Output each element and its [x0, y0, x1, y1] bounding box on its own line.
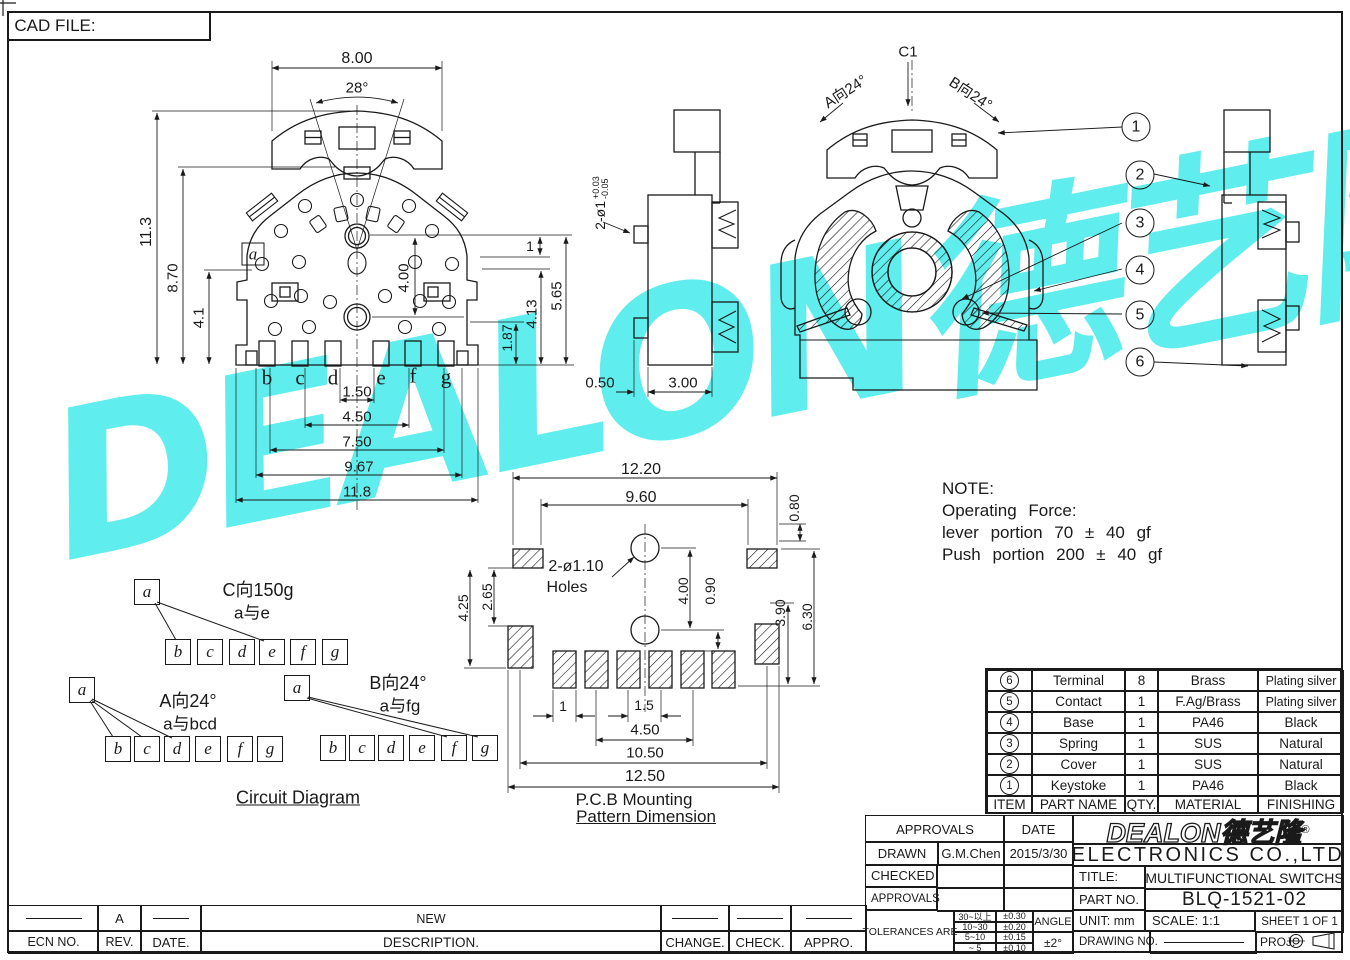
circuit-b-d: d	[378, 735, 404, 761]
circuit-a-a: a	[69, 677, 95, 703]
item-number: 4	[1000, 713, 1019, 732]
parts-row-item: 6	[987, 670, 1032, 691]
note-line-2: Operating Force:	[942, 501, 1077, 521]
part-name: Contact	[1032, 691, 1125, 712]
unit-cell: UNIT: mm	[1072, 910, 1145, 931]
parts-row-item: 5	[987, 691, 1032, 712]
angle-label: ANGLE	[1032, 910, 1074, 933]
part-material: SUS	[1158, 733, 1258, 754]
part-qty: 1	[1125, 754, 1158, 775]
front-marker-a: a	[242, 243, 265, 266]
balloon-3: 3	[1126, 209, 1155, 238]
parts-row-item: 3	[987, 733, 1032, 754]
dim-4-50-pcb: 4.50	[630, 722, 659, 739]
circuit-c-label-2: a与e	[234, 599, 270, 624]
circuit-a-b: b	[105, 736, 131, 762]
dim-11-3: 11.3	[138, 217, 156, 247]
circuit-a-f: f	[227, 736, 253, 762]
dim-1-pcb: 1	[559, 698, 567, 714]
title-value: MULTIFUNCTIONAL SWITCHS	[1145, 865, 1344, 890]
approvals-header: APPROVALS	[865, 815, 1005, 843]
header-check: CHECK.	[728, 930, 792, 954]
dim-0-80: 0.80	[786, 494, 802, 521]
part-material: PA46	[1158, 712, 1258, 733]
pcb-holes-callout-1: 2-ø1.10	[548, 558, 603, 576]
section-view-annotations	[820, 62, 1248, 366]
scale-cell: SCALE: 1:1	[1145, 910, 1255, 931]
front-pin-b: b	[262, 366, 273, 391]
part-qty: 1	[1125, 733, 1158, 754]
circuit-c-d: d	[229, 639, 255, 665]
dim-4-50-front: 4.50	[342, 409, 371, 426]
front-pin-c: c	[295, 366, 304, 391]
part-name: Keystoke	[1032, 775, 1125, 796]
approvals-label: APPROVALS	[865, 887, 937, 910]
header-description: DESCRIPTION.	[200, 930, 662, 954]
tol-val-4: ±0.10	[995, 942, 1034, 955]
dim-0-90: 0.90	[702, 577, 718, 604]
pcb-holes-callout-2: Holes	[547, 579, 588, 597]
dim-3-90: 3.90	[772, 599, 788, 626]
parts-row-item: 4	[987, 712, 1032, 733]
item-number: 1	[1000, 776, 1019, 795]
part-finishing: Natural	[1258, 733, 1344, 754]
proj-label: PROJ:	[1260, 935, 1295, 949]
balloon-2: 2	[1126, 161, 1155, 190]
title-label: TITLE:	[1072, 865, 1145, 888]
part-no-label: PART NO.	[1072, 888, 1145, 910]
part-qty: 1	[1125, 691, 1158, 712]
parts-row-item: 2	[987, 754, 1032, 775]
dim-1-87: 1.87	[499, 324, 515, 351]
right-view-linework	[1222, 110, 1299, 365]
pcb-pattern-linework	[508, 524, 779, 712]
cad-file-label: CAD FILE:	[14, 16, 95, 36]
part-finishing: Black	[1258, 775, 1344, 796]
circuit-c-e: e	[259, 639, 285, 665]
part-material: PA46	[1158, 775, 1258, 796]
dim-4-00-pcb: 4.00	[675, 577, 691, 604]
company-name: ELECTRONICS CO.,LTD	[1072, 844, 1345, 867]
dim-4-13: 4.13	[524, 299, 541, 328]
part-name: Spring	[1032, 733, 1125, 754]
part-finishing: Natural	[1258, 754, 1344, 775]
approvals-name	[937, 887, 1005, 912]
blank-dash	[1164, 942, 1244, 943]
dim-4-00-front: 4.00	[396, 263, 413, 292]
blank-dash	[737, 918, 783, 919]
blank-dash	[153, 918, 189, 919]
section-view-linework	[781, 60, 1043, 390]
circuit-caption: Circuit Diagram	[236, 788, 360, 809]
hole-tolerance: +0.03-0.05	[592, 176, 610, 199]
balloon-5: 5	[1126, 301, 1155, 330]
dim-28deg: 28°	[346, 80, 369, 97]
rev-change-dash	[660, 905, 730, 932]
checked-name	[937, 864, 1005, 889]
dim-8-70: 8.70	[165, 263, 182, 292]
checked-label: CHECKED	[865, 864, 937, 887]
circuit-c-a: a	[134, 579, 160, 605]
balloon-1: 1	[1122, 113, 1151, 142]
date-header: DATE	[1003, 815, 1074, 843]
part-qty: 1	[1125, 775, 1158, 796]
rev-letter: A	[97, 905, 142, 932]
circuit-a-c: c	[134, 736, 160, 762]
dim-4-25: 4.25	[455, 594, 471, 621]
blank-dash	[806, 918, 852, 919]
balloon-4: 4	[1126, 256, 1155, 285]
item-number: 3	[1000, 734, 1019, 753]
part-name: Cover	[1032, 754, 1125, 775]
dim-5-65: 5.65	[549, 281, 566, 310]
dim-12-50: 12.50	[625, 768, 665, 786]
circuit-c-b: b	[165, 639, 191, 665]
part-material: F.Ag/Brass	[1158, 691, 1258, 712]
pcb-caption-2: Pattern Dimension	[576, 807, 716, 827]
front-pin-f: f	[410, 364, 417, 389]
drawn-date: 2015/3/30	[1003, 841, 1074, 866]
circuit-a-e: e	[195, 736, 221, 762]
drawing-no-label: DRAWING NO.	[1072, 931, 1150, 952]
circuit-b-a: a	[284, 675, 310, 701]
registered-mark: ®	[1301, 824, 1309, 836]
drawn-label: DRAWN	[865, 841, 939, 866]
part-finishing: Plating silver	[1258, 691, 1344, 712]
checked-date	[1003, 864, 1074, 889]
dim-6-30: 6.30	[799, 603, 815, 630]
side-view-linework	[634, 110, 738, 365]
dim-2-o1: 2-ø1+0.03-0.05	[592, 176, 610, 230]
circuit-b-label-2: a与fg	[380, 692, 421, 717]
part-qty: 8	[1125, 670, 1158, 691]
circuit-c-f: f	[290, 639, 316, 665]
rev-appro-dash	[790, 905, 867, 932]
dim-4-1: 4.1	[191, 308, 208, 329]
circuit-a-d: d	[164, 736, 190, 762]
circuit-c-g: g	[322, 639, 348, 665]
tolerances-label: TOLERANCES ARE	[865, 910, 955, 954]
dim-11-8: 11.8	[343, 484, 371, 501]
dim-10-50: 10.50	[626, 745, 664, 762]
note-line-4: Push portion 200 ± 40 gf	[942, 545, 1162, 565]
rev-description: NEW	[200, 905, 662, 932]
circuit-b-b: b	[320, 735, 346, 761]
parts-table: 6 Terminal 8 Brass Plating silver 5 Cont…	[985, 668, 1342, 814]
circuit-b-c: c	[349, 735, 375, 761]
dim-3-00: 3.00	[668, 375, 697, 392]
part-finishing: Plating silver	[1258, 670, 1344, 691]
parts-header-item: ITEM	[987, 796, 1032, 813]
part-no-value: BLQ-1521-02	[1145, 888, 1344, 912]
angle-tolerance: ±2°	[1032, 931, 1074, 954]
drawing-no-value	[1150, 931, 1257, 954]
circuit-a-label-2: a与bcd	[163, 710, 217, 735]
part-material: SUS	[1158, 754, 1258, 775]
dim-1-50: 1.50	[342, 384, 371, 401]
rev-ecn-dash	[8, 905, 99, 932]
front-pin-g: g	[441, 365, 452, 390]
rev-date-dash	[140, 905, 202, 932]
part-name: Terminal	[1032, 670, 1125, 691]
approvals-date	[1003, 887, 1074, 912]
dim-7-50: 7.50	[342, 434, 371, 451]
dim-0-50: 0.50	[585, 375, 614, 392]
part-finishing: Black	[1258, 712, 1344, 733]
circuit-b-f: f	[441, 735, 467, 761]
drawing-sheet: DEALON德艺隆®	[0, 0, 1350, 960]
blank-dash	[26, 918, 82, 919]
circuit-a-g: g	[257, 736, 283, 762]
parts-row-item: 1	[987, 775, 1032, 796]
item-number: 2	[1000, 755, 1019, 774]
header-appro: APPRO.	[790, 930, 867, 954]
tol-range-4: ~ 5	[953, 942, 997, 955]
dim-8-00: 8.00	[341, 50, 372, 68]
balloon-6: 6	[1126, 348, 1155, 377]
dim-1-front: 1	[526, 238, 534, 254]
dim-9-67: 9.67	[344, 459, 373, 476]
company-cell: ELECTRONICS CO.,LTD	[1072, 843, 1344, 867]
note-title: NOTE:	[942, 479, 994, 499]
header-ecn-no: ECN NO.	[8, 930, 99, 954]
dim-1-5: 1.5	[634, 697, 653, 713]
circuit-b-g: g	[472, 735, 498, 761]
circuit-b-e: e	[409, 735, 435, 761]
circuit-c-c: c	[197, 639, 223, 665]
blank-dash	[672, 918, 718, 919]
proj-cell: PROJ:	[1255, 931, 1342, 952]
note-line-3: lever portion 70 ± 40 gf	[942, 523, 1151, 543]
dim-12-20: 12.20	[621, 461, 661, 479]
front-pin-e: e	[376, 366, 385, 391]
part-name: Base	[1032, 712, 1125, 733]
item-number: 6	[1000, 671, 1019, 690]
side-view-dimensions	[603, 222, 712, 397]
header-date: DATE.	[140, 930, 202, 954]
dim-9-60: 9.60	[625, 489, 656, 507]
sheet-cell: SHEET 1 OF 1	[1255, 910, 1344, 933]
part-material: Brass	[1158, 670, 1258, 691]
rev-check-dash	[728, 905, 792, 932]
header-rev: REV.	[97, 930, 142, 954]
item-number: 5	[1000, 692, 1019, 711]
logo-cell: DEALON德艺隆®	[1072, 815, 1344, 845]
header-change: CHANGE.	[660, 930, 730, 954]
drawn-name: G.M.Chen	[937, 841, 1005, 866]
front-pin-d: d	[328, 366, 339, 391]
label-c1: C1	[898, 44, 917, 61]
dim-2-65: 2.65	[479, 583, 495, 610]
part-qty: 1	[1125, 712, 1158, 733]
hole-callout: 2-ø1	[592, 201, 608, 230]
